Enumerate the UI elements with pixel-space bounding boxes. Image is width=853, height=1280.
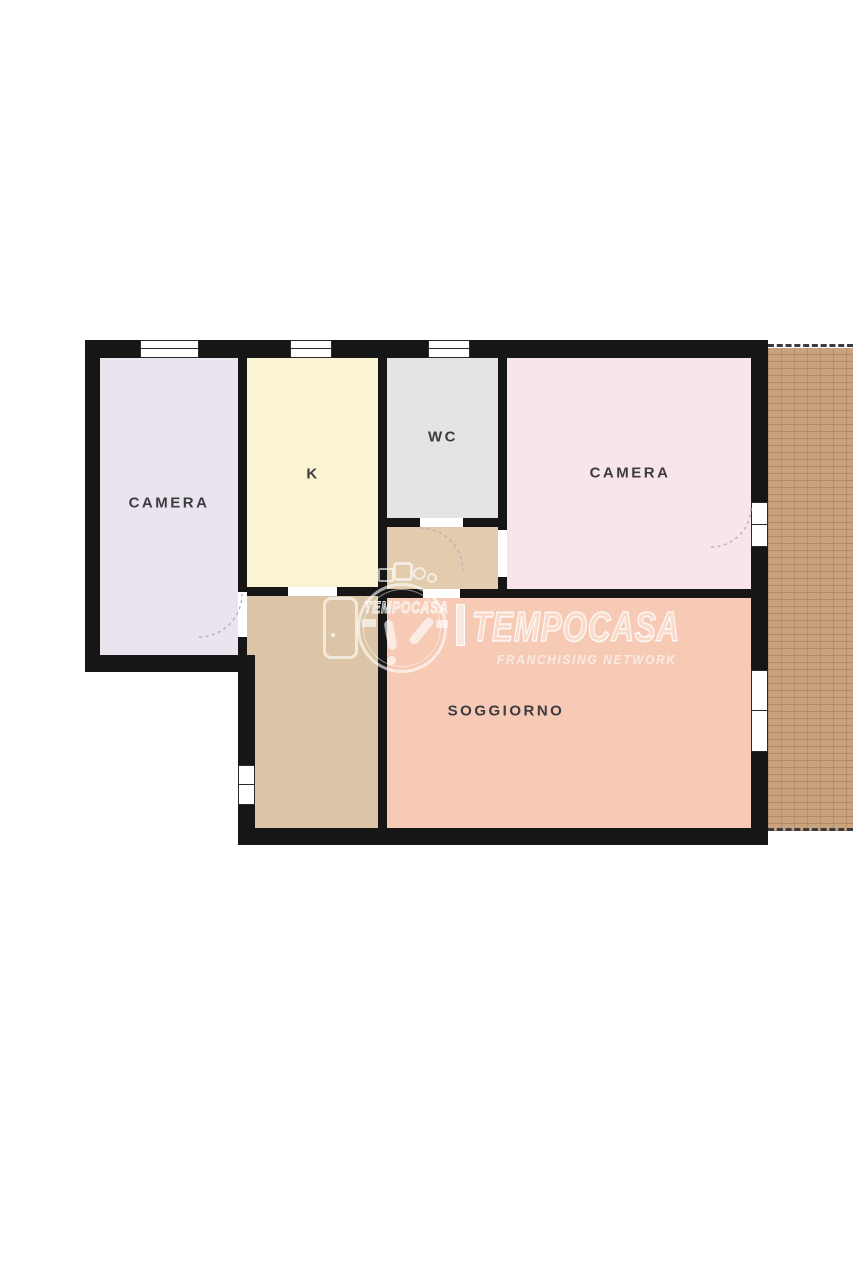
watermark-badge-dot <box>331 633 335 637</box>
watermark-clock-crown <box>393 562 413 581</box>
terrace-door-camera-right <box>751 502 768 547</box>
wall-bottom <box>238 828 768 845</box>
label-camera-right: CAMERA <box>590 465 671 482</box>
window-camera-left <box>140 340 199 358</box>
watermark-chain-ring-2 <box>427 573 437 583</box>
label-soggiorno: SOGGIORNO <box>448 703 565 720</box>
watermark-dash-right <box>436 620 448 628</box>
watermark-badge-outline <box>323 597 358 659</box>
clock-pendulum-dot <box>387 656 396 665</box>
door-kitchen <box>288 587 337 596</box>
door-wc <box>420 518 463 527</box>
wall-camera-left-kitchen-lower <box>238 637 247 655</box>
door-camera-left <box>238 592 247 637</box>
window-hallway <box>238 765 255 805</box>
terrace-boundary-top <box>768 344 853 347</box>
trademark-symbol: ™ <box>645 633 654 643</box>
label-wc: WC <box>428 429 458 446</box>
franchising-network-text: FRANCHISING NETWORK <box>497 652 677 667</box>
wall-kitchen-bottom-left <box>247 587 288 596</box>
wall-camera-left-bottom <box>85 655 255 672</box>
wall-left-lower <box>238 655 255 845</box>
tempocasa-logo-text: TEMPOCASA <box>364 599 449 616</box>
watermark-chain-square <box>378 568 394 582</box>
watermark-separator-bar <box>456 604 465 646</box>
brick-pattern <box>768 348 853 831</box>
watermark-dash-left <box>362 619 376 627</box>
wall-wc-bottom-left <box>387 518 420 527</box>
floorplan-canvas: CAMERA K WC CAMERA SOGGIORNO TEMPOCASA T… <box>0 0 853 1280</box>
watermark-chain-ring-1 <box>413 567 426 580</box>
window-kitchen <box>290 340 332 358</box>
wall-wc-camera-right <box>498 358 507 530</box>
wall-wc-bottom-right <box>463 518 498 527</box>
tempocasa-clock-circle <box>357 583 447 673</box>
label-camera-left: CAMERA <box>129 495 210 512</box>
label-kitchen: K <box>306 466 319 483</box>
wall-left-upper <box>85 340 100 672</box>
wall-camera-left-kitchen <box>238 358 247 592</box>
door-camera-right <box>498 530 507 577</box>
wall-soggiorno-top-right <box>460 589 751 598</box>
terrace-boundary-bottom <box>768 828 853 831</box>
window-wc <box>428 340 470 358</box>
terrace-area <box>768 348 853 831</box>
wall-right <box>751 340 768 845</box>
window-soggiorno <box>751 670 768 752</box>
